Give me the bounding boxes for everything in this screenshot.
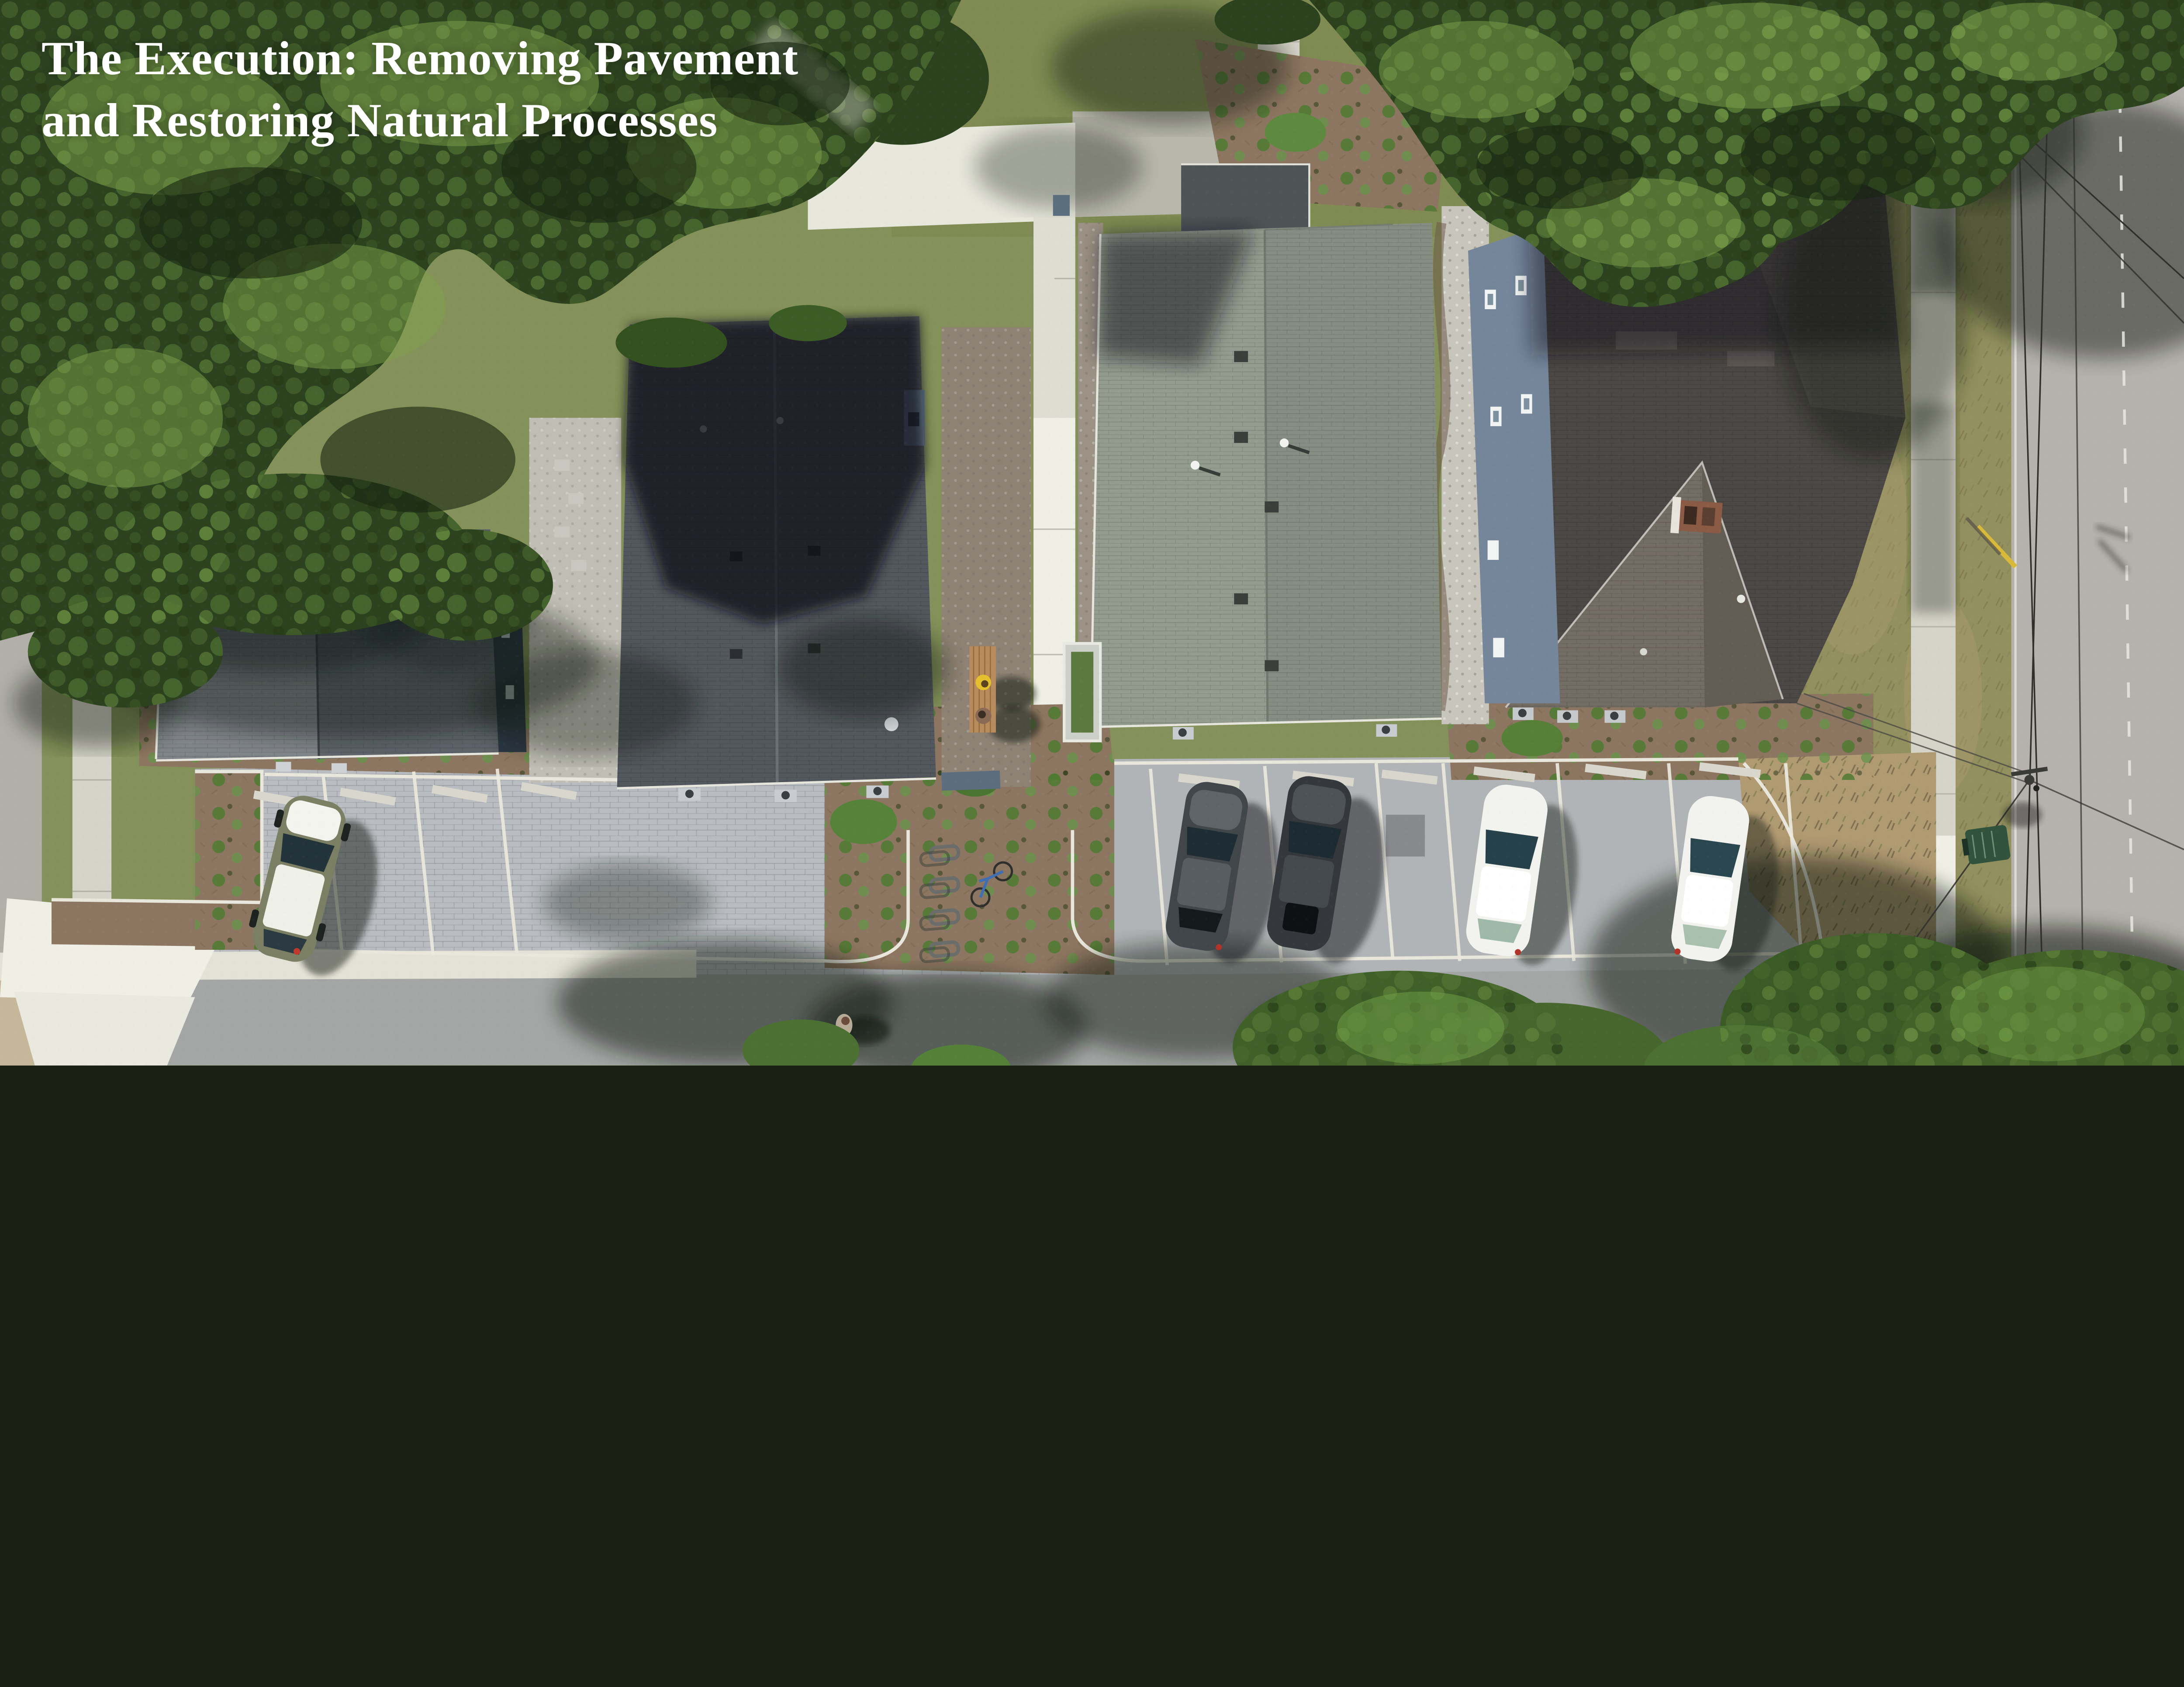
aerial-photo bbox=[0, 0, 2184, 1066]
page-title: The Execution: Removing Pavement and Res… bbox=[41, 28, 798, 151]
photo-grain bbox=[0, 0, 2184, 1066]
page-title-line-2: and Restoring Natural Processes bbox=[41, 90, 798, 152]
page-title-line-1: The Execution: Removing Pavement bbox=[41, 28, 798, 90]
aerial-photo-page: The Execution: Removing Pavement and Res… bbox=[0, 0, 2184, 1066]
